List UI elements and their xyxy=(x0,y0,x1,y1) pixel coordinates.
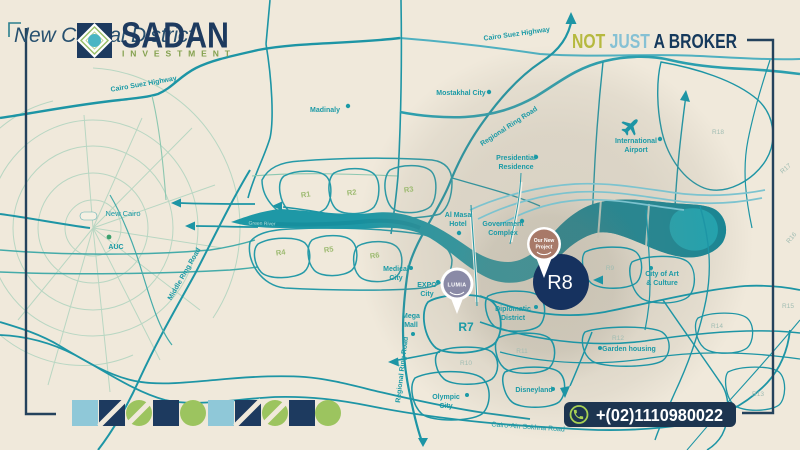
svg-text:R6: R6 xyxy=(369,250,380,260)
svg-text:& Culture: & Culture xyxy=(646,280,678,287)
svg-text:NOT JUST A BROKER: NOT JUST A BROKER xyxy=(572,30,737,53)
svg-text:Mostakhal City: Mostakhal City xyxy=(436,90,486,97)
svg-text:R10: R10 xyxy=(460,360,472,367)
svg-text:City: City xyxy=(439,403,452,410)
svg-text:R5: R5 xyxy=(323,244,334,254)
svg-text:R18: R18 xyxy=(712,129,724,136)
svg-text:R7: R7 xyxy=(458,320,474,334)
svg-text:Residence: Residence xyxy=(498,164,533,171)
svg-text:EXPO: EXPO xyxy=(417,282,437,289)
svg-text:Madinaly: Madinaly xyxy=(310,107,340,114)
svg-text:R14: R14 xyxy=(711,323,723,330)
svg-text:R1: R1 xyxy=(300,189,311,199)
svg-text:Our New: Our New xyxy=(534,238,555,244)
svg-text:R8: R8 xyxy=(547,272,573,294)
svg-text:Disneyland: Disneyland xyxy=(515,387,552,394)
svg-text:Al Masa: Al Masa xyxy=(445,212,472,219)
svg-text:Complex: Complex xyxy=(488,230,518,237)
svg-text:R12: R12 xyxy=(612,335,624,342)
svg-text:New Cairo: New Cairo xyxy=(105,209,140,218)
svg-text:Hotel: Hotel xyxy=(449,221,467,228)
svg-text:Olympic: Olympic xyxy=(432,394,460,401)
svg-text:Garden housing: Garden housing xyxy=(602,346,656,353)
svg-text:R13: R13 xyxy=(752,391,764,398)
svg-text:Diplomatic: Diplomatic xyxy=(495,306,531,313)
svg-text:R9: R9 xyxy=(606,265,615,272)
svg-text:City: City xyxy=(420,291,433,298)
svg-text:Medical: Medical xyxy=(383,266,409,273)
svg-text:R2: R2 xyxy=(346,187,357,197)
svg-text:Project: Project xyxy=(536,245,553,251)
svg-text:R11: R11 xyxy=(516,348,528,355)
svg-text:Airport: Airport xyxy=(624,147,648,154)
svg-text:AUC: AUC xyxy=(108,244,123,251)
svg-text:District: District xyxy=(501,315,526,322)
svg-text:City of Art: City of Art xyxy=(645,271,679,278)
svg-text:International: International xyxy=(615,138,657,145)
svg-text:R15: R15 xyxy=(782,303,794,310)
svg-text:Mall: Mall xyxy=(404,322,418,329)
svg-text:City: City xyxy=(389,275,402,282)
svg-text:LUMIA: LUMIA xyxy=(447,283,466,289)
svg-text:Government: Government xyxy=(482,221,524,228)
svg-text:Mega: Mega xyxy=(402,313,420,320)
svg-text:R3: R3 xyxy=(403,184,414,194)
svg-text:Presidential: Presidential xyxy=(496,155,536,162)
svg-text:+(02)1110980022: +(02)1110980022 xyxy=(596,405,723,425)
